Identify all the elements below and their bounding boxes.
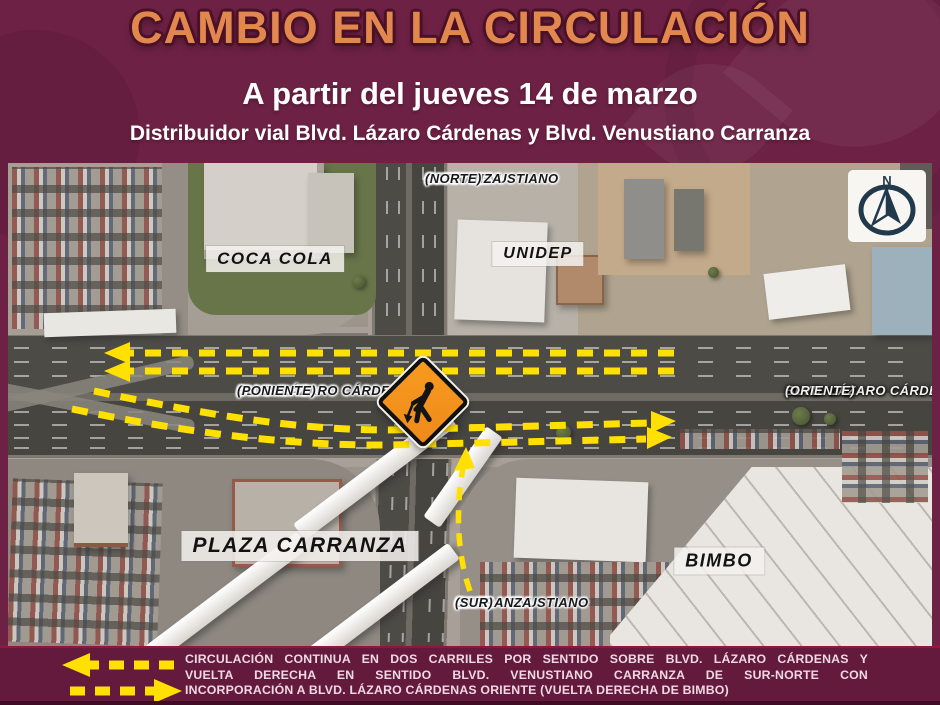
label-coca-cola: COCA COLA [206,246,344,272]
lane-marking [386,167,388,331]
lane-marking [14,361,926,363]
tree [792,407,810,425]
construction-worker-icon [398,377,448,427]
legend-footer: CIRCULACIÓN CONTINUA EN DOS CARRILES POR… [0,645,940,705]
lane-marking [434,167,436,331]
lane-marking [422,167,424,331]
legend-arrows [52,652,192,702]
tree [556,425,571,440]
poster-title: CAMBIO EN LA CIRCULACIÓN [0,2,940,54]
label-plaza-carranza: PLAZA CARRANZA [181,531,418,561]
white-building [764,264,851,320]
road-venustiano-carranza-north [368,163,452,335]
north-arrow-icon: N [848,170,926,242]
legend-text: CIRCULACIÓN CONTINUA EN DOS CARRILES POR… [185,652,868,699]
aerial-map: BLVD. VENUSTIANO CARRANZA (NORTE) BLVD. … [8,163,932,646]
tree [352,275,365,288]
unidep-building [454,219,547,322]
tree [824,413,836,425]
white-building [514,478,649,563]
industrial-structure [674,189,704,251]
legend-line-3: INCORPORACIÓN A BLVD. LÁZARO CÁRDENAS OR… [185,683,868,699]
legend-line-1: CIRCULACIÓN CONTINUA EN DOS CARRILES POR… [185,652,868,668]
tree [708,267,719,278]
label-bimbo: BIMBO [674,548,764,575]
industrial-structure [624,179,664,259]
label-unidep: UNIDEP [492,242,583,266]
coca-cola-building [204,163,324,259]
frontage-parking [680,429,840,449]
traffic-change-poster: CAMBIO EN LA CIRCULACIÓN A partir del ju… [0,0,940,705]
lane-marking [398,167,400,331]
compass-letter: N [882,173,891,188]
coca-cola-building-wing [308,173,354,253]
bottom-edge [0,701,940,705]
lane-marking [14,347,926,349]
effective-date: A partir del jueves 14 de marzo [0,76,940,112]
truck-yard [842,431,928,503]
location-subtitle: Distribuidor vial Blvd. Lázaro Cárdenas … [0,122,940,146]
restaurant-building [74,473,128,547]
legend-line-2: VUELTA DERECHA EN SENTIDO BLVD. VENUSTIA… [185,668,868,684]
blue-building [872,247,932,335]
strip-building [44,309,177,338]
parking-lot [12,167,162,329]
